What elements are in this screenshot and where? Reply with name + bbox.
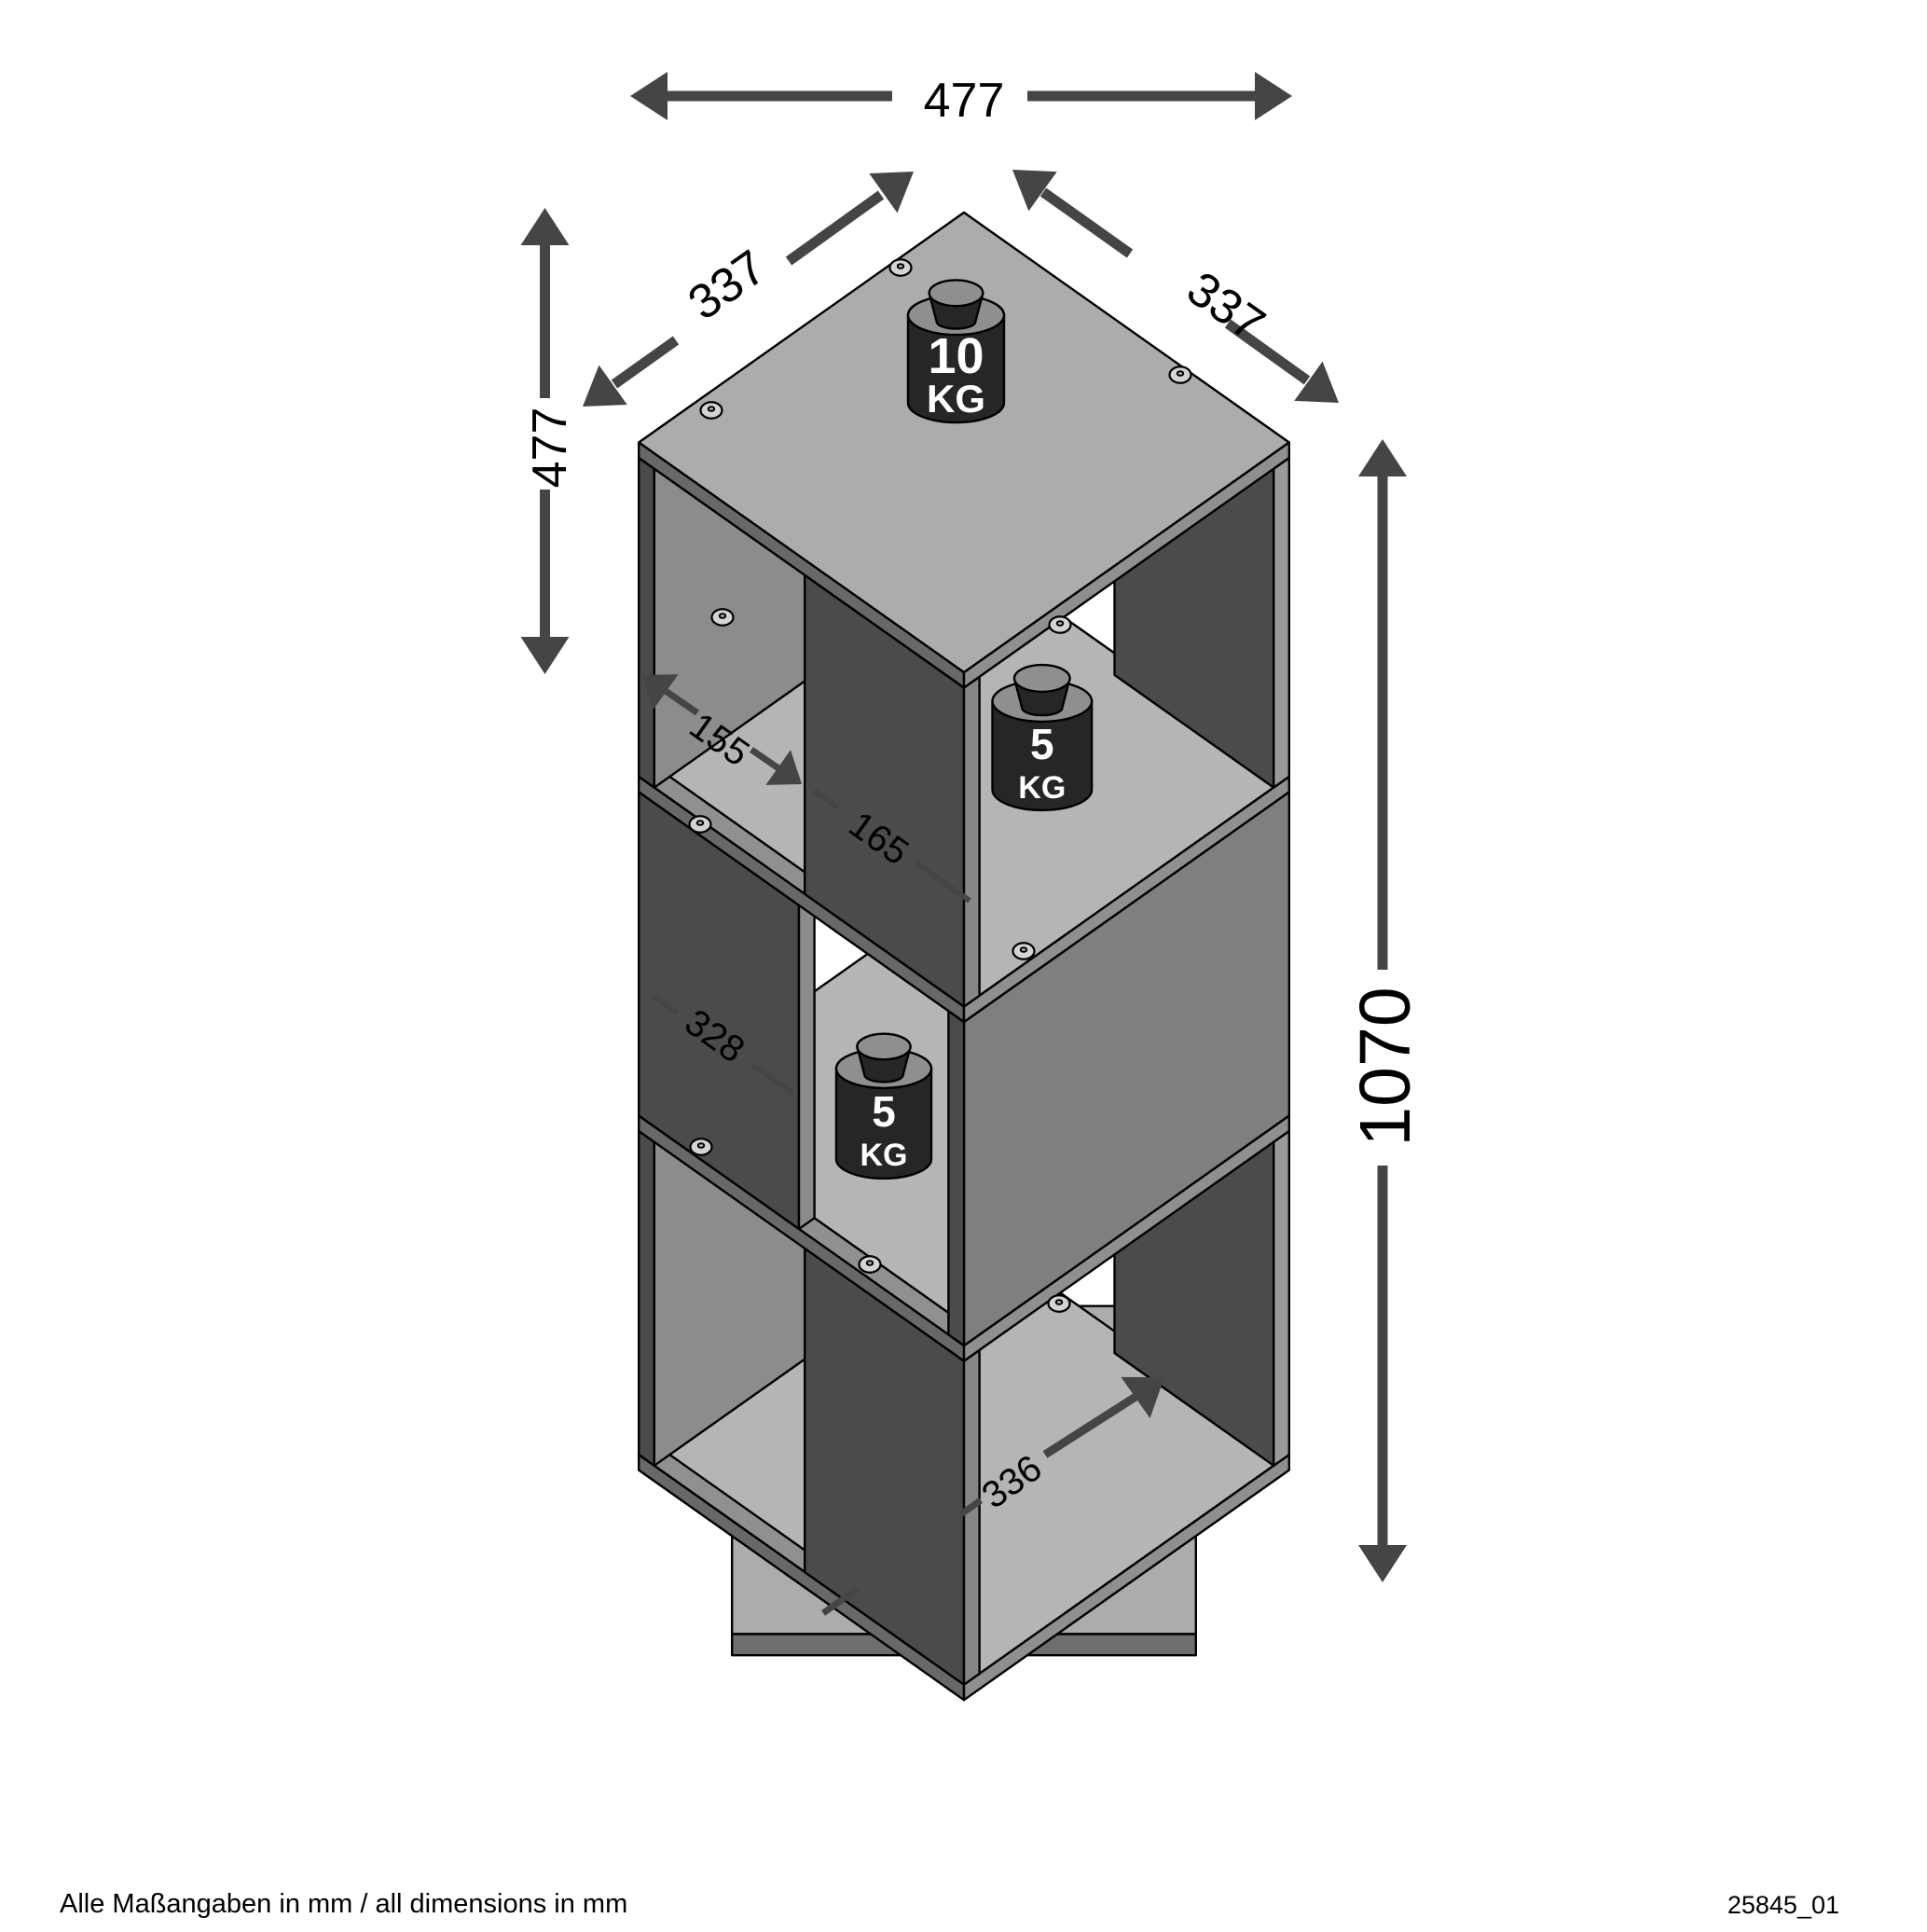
- svg-text:KG: KG: [1018, 770, 1066, 806]
- svg-text:10: 10: [928, 328, 984, 384]
- svg-text:477: 477: [523, 407, 577, 489]
- svg-text:25845_01: 25845_01: [1727, 1891, 1839, 1919]
- svg-text:1070: 1070: [1345, 987, 1425, 1146]
- svg-text:5: 5: [1030, 720, 1054, 768]
- svg-text:477: 477: [924, 74, 1005, 128]
- svg-text:KG: KG: [927, 377, 985, 421]
- svg-text:5: 5: [872, 1087, 896, 1136]
- svg-text:KG: KG: [860, 1138, 908, 1173]
- svg-text:Alle Maßangaben in mm / all di: Alle Maßangaben in mm / all dimensions i…: [60, 1889, 627, 1919]
